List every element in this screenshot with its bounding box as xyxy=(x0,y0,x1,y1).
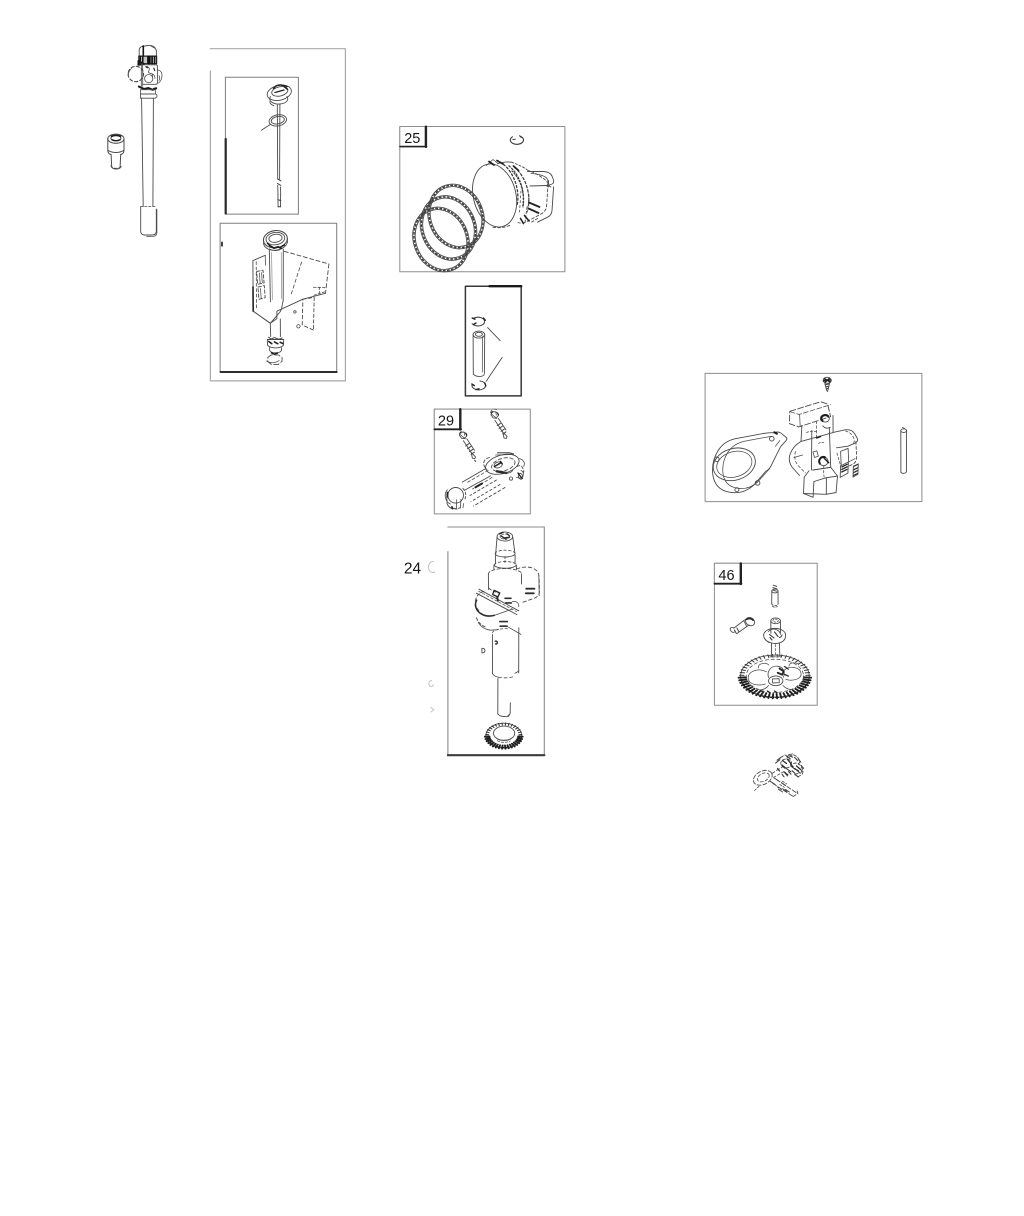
svg-text:24: 24 xyxy=(404,560,422,577)
svg-text:46: 46 xyxy=(718,568,734,584)
svg-text:29: 29 xyxy=(438,413,454,429)
svg-text:25: 25 xyxy=(404,131,420,147)
